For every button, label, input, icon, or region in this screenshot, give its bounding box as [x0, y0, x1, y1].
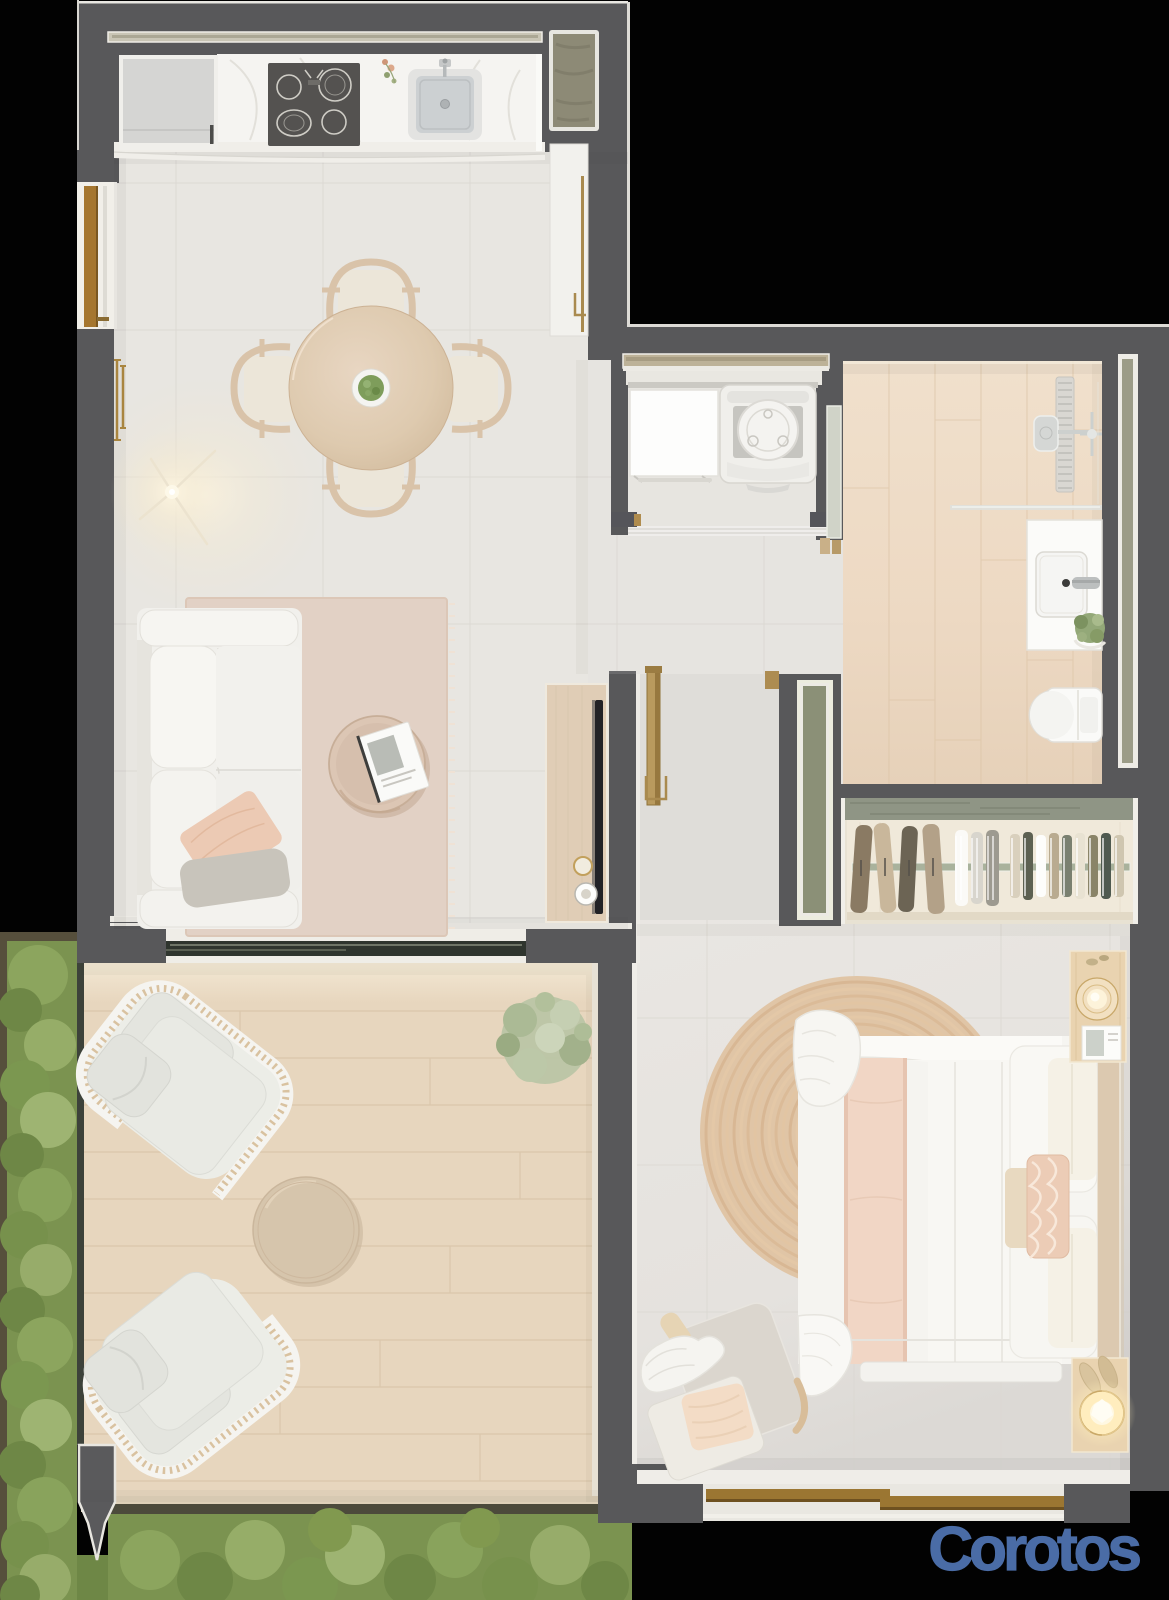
svg-text:Corotos: Corotos	[928, 1515, 1139, 1584]
